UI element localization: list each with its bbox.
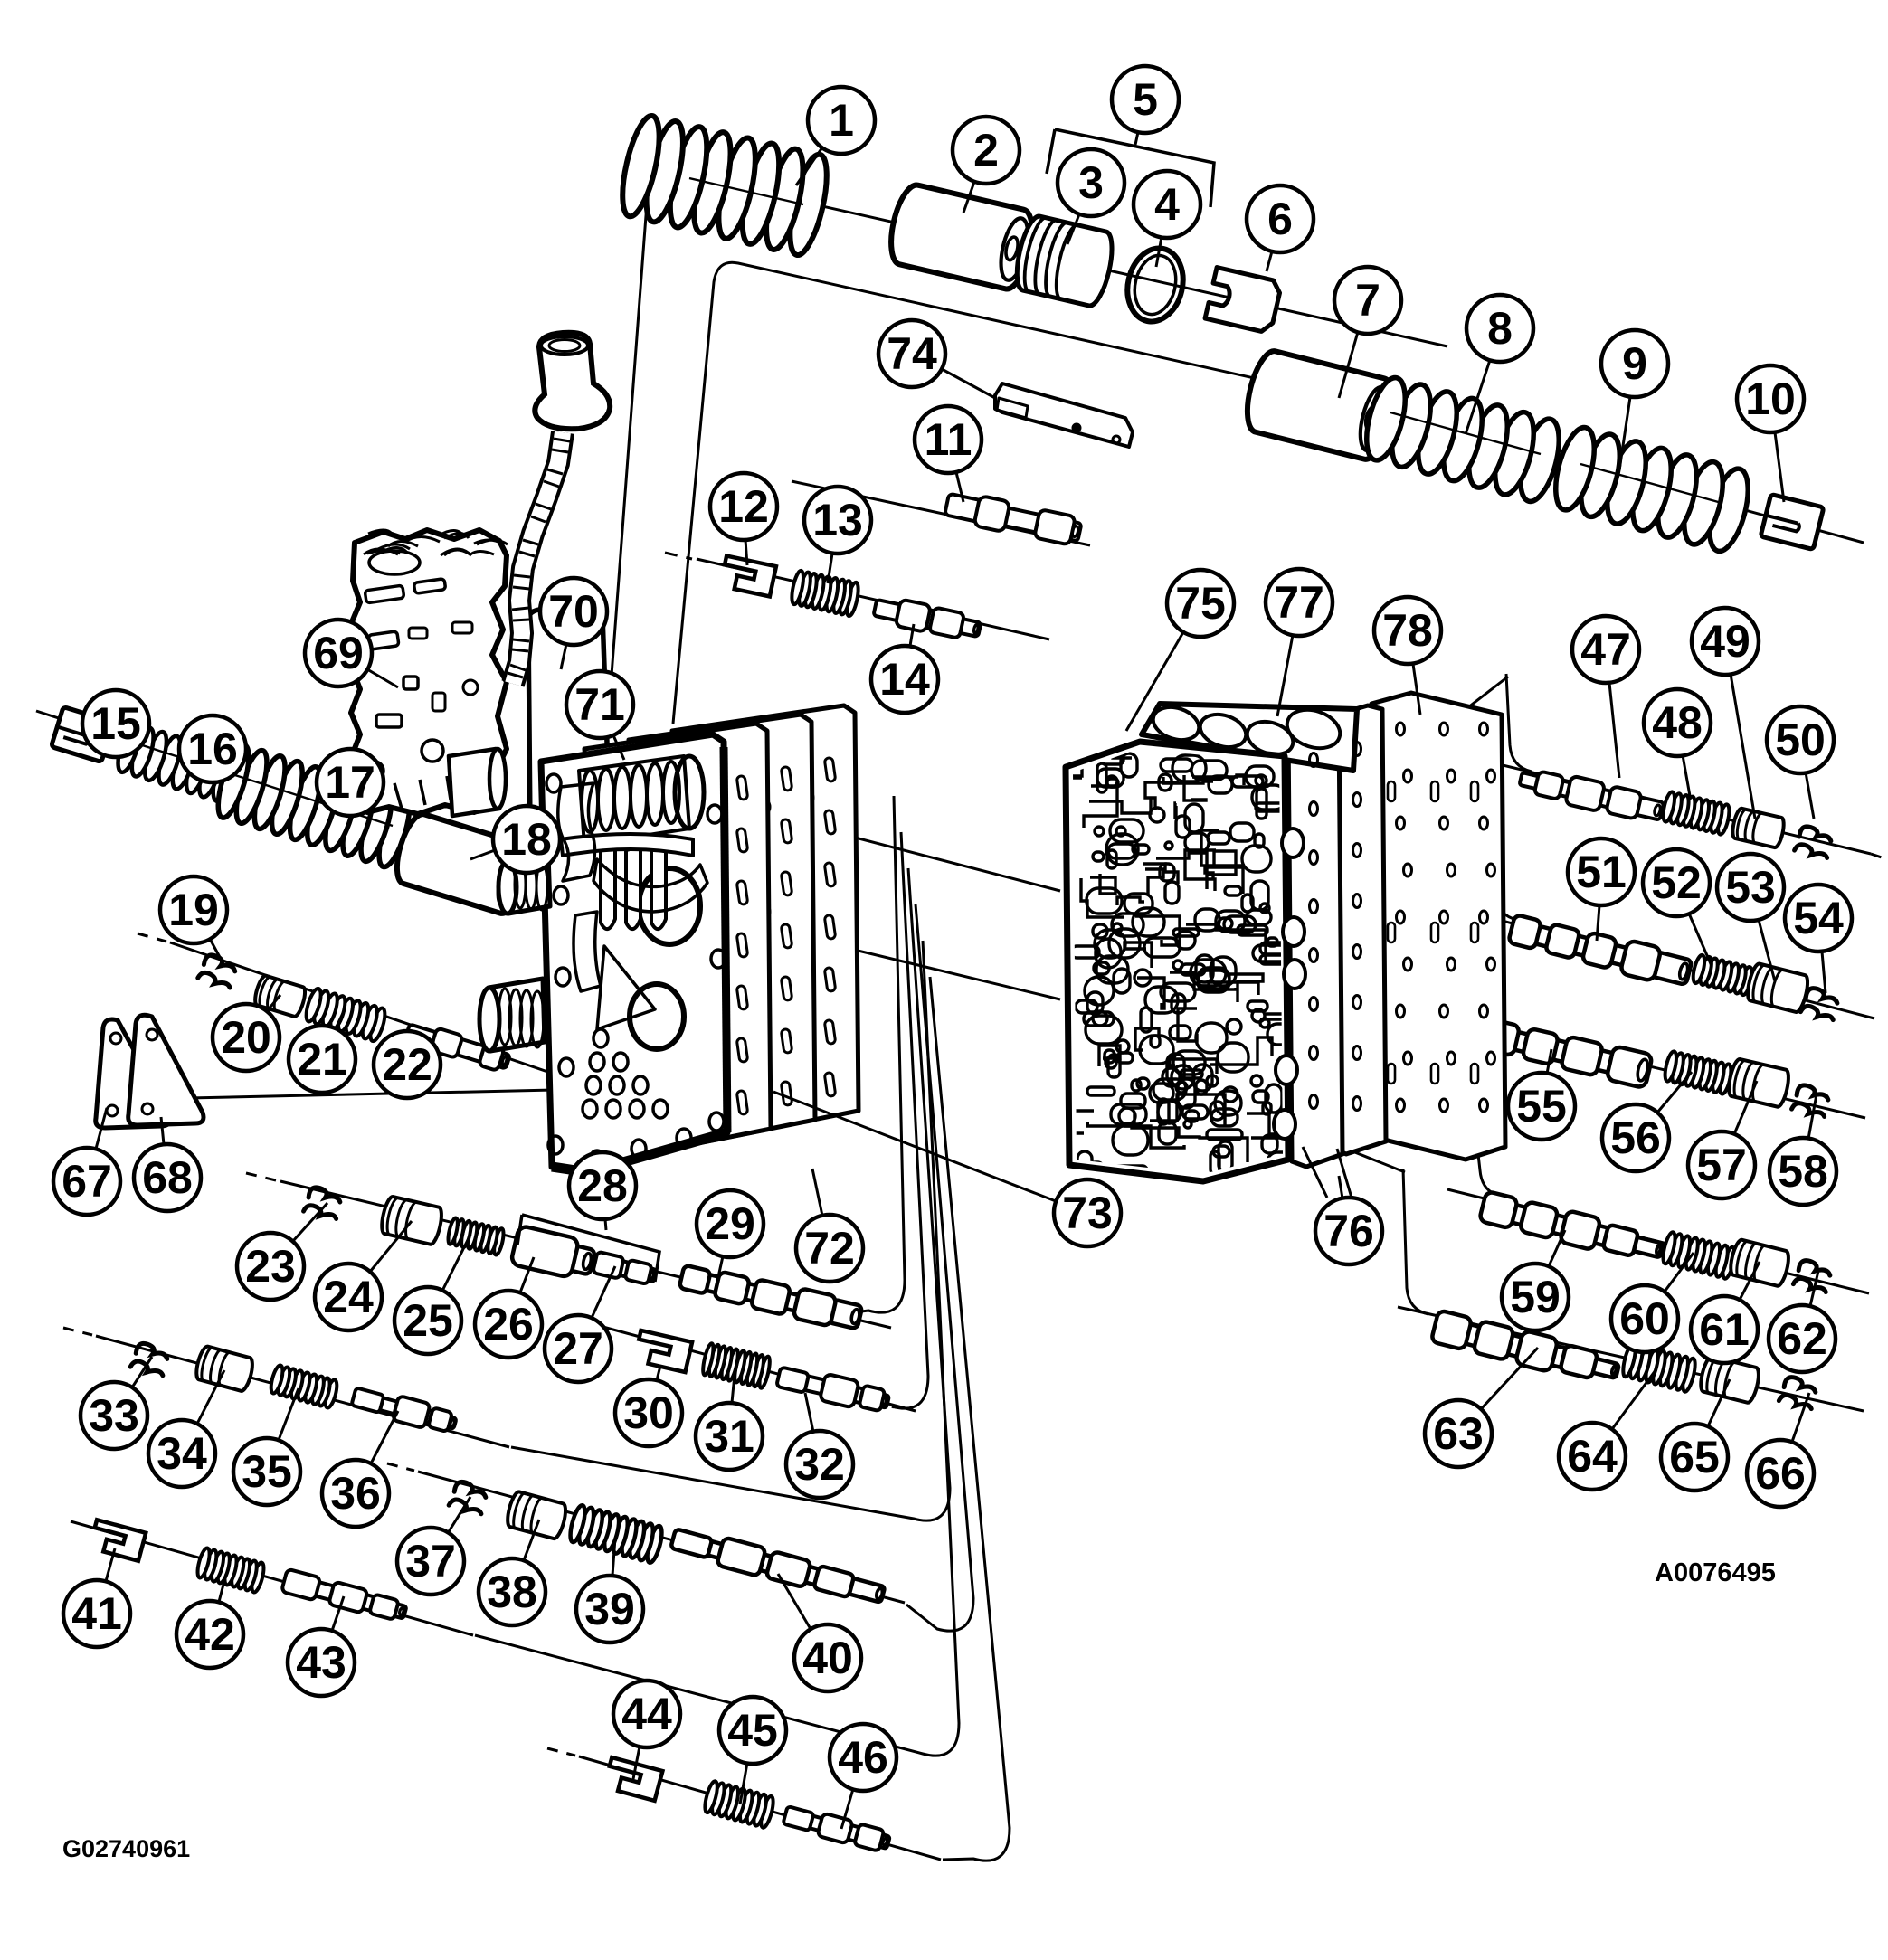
svg-text:29: 29 xyxy=(705,1198,755,1249)
svg-text:61: 61 xyxy=(1699,1304,1750,1355)
svg-text:10: 10 xyxy=(1745,374,1796,424)
svg-text:28: 28 xyxy=(577,1160,628,1211)
svg-text:8: 8 xyxy=(1487,303,1513,354)
svg-text:36: 36 xyxy=(330,1468,381,1519)
svg-text:17: 17 xyxy=(325,757,375,808)
svg-text:19: 19 xyxy=(168,885,219,935)
svg-text:63: 63 xyxy=(1433,1408,1484,1459)
svg-text:6: 6 xyxy=(1267,194,1293,244)
svg-text:71: 71 xyxy=(574,679,625,730)
svg-text:60: 60 xyxy=(1619,1293,1670,1344)
svg-text:31: 31 xyxy=(704,1411,754,1462)
svg-text:40: 40 xyxy=(802,1633,853,1683)
svg-text:69: 69 xyxy=(313,628,364,678)
svg-text:48: 48 xyxy=(1652,697,1703,748)
svg-text:52: 52 xyxy=(1651,857,1702,908)
svg-text:58: 58 xyxy=(1778,1146,1828,1197)
svg-text:24: 24 xyxy=(323,1272,374,1322)
svg-text:68: 68 xyxy=(142,1152,193,1203)
svg-text:44: 44 xyxy=(621,1689,672,1739)
svg-text:64: 64 xyxy=(1567,1431,1618,1482)
svg-text:77: 77 xyxy=(1274,577,1324,628)
svg-text:66: 66 xyxy=(1755,1448,1806,1499)
svg-text:30: 30 xyxy=(623,1387,674,1438)
svg-text:72: 72 xyxy=(804,1223,855,1274)
svg-text:23: 23 xyxy=(245,1241,296,1292)
svg-text:67: 67 xyxy=(62,1156,112,1207)
svg-text:75: 75 xyxy=(1175,578,1226,629)
svg-text:38: 38 xyxy=(487,1567,537,1617)
svg-text:12: 12 xyxy=(718,481,769,532)
svg-text:73: 73 xyxy=(1062,1188,1113,1238)
svg-text:7: 7 xyxy=(1355,275,1380,326)
svg-text:15: 15 xyxy=(90,698,141,749)
svg-text:35: 35 xyxy=(242,1446,292,1497)
svg-text:11: 11 xyxy=(925,414,972,465)
svg-text:49: 49 xyxy=(1700,616,1750,667)
svg-text:62: 62 xyxy=(1777,1313,1827,1364)
svg-text:39: 39 xyxy=(584,1584,635,1634)
svg-text:74: 74 xyxy=(887,328,937,379)
svg-text:13: 13 xyxy=(812,495,863,545)
svg-text:65: 65 xyxy=(1669,1432,1720,1482)
svg-text:78: 78 xyxy=(1382,605,1433,656)
svg-text:43: 43 xyxy=(296,1637,346,1688)
svg-text:56: 56 xyxy=(1610,1113,1661,1163)
svg-text:54: 54 xyxy=(1793,893,1844,943)
svg-text:50: 50 xyxy=(1775,715,1826,765)
svg-text:3: 3 xyxy=(1078,157,1104,208)
svg-text:47: 47 xyxy=(1580,624,1631,675)
svg-text:A0076495: A0076495 xyxy=(1655,1558,1776,1587)
svg-text:45: 45 xyxy=(727,1705,778,1756)
svg-text:26: 26 xyxy=(483,1299,534,1349)
svg-text:22: 22 xyxy=(382,1039,432,1090)
svg-text:46: 46 xyxy=(838,1732,888,1783)
svg-text:G02740961: G02740961 xyxy=(62,1835,190,1862)
svg-text:76: 76 xyxy=(1323,1206,1374,1256)
svg-text:16: 16 xyxy=(187,724,238,774)
svg-text:5: 5 xyxy=(1133,74,1158,125)
svg-text:2: 2 xyxy=(973,125,999,175)
svg-text:21: 21 xyxy=(297,1034,347,1084)
svg-text:1: 1 xyxy=(829,95,854,146)
svg-text:34: 34 xyxy=(157,1428,207,1479)
svg-text:57: 57 xyxy=(1696,1140,1747,1190)
svg-text:14: 14 xyxy=(879,654,930,705)
svg-text:27: 27 xyxy=(553,1323,603,1374)
svg-text:53: 53 xyxy=(1725,862,1776,913)
svg-text:42: 42 xyxy=(185,1609,235,1660)
svg-text:4: 4 xyxy=(1154,179,1180,230)
svg-text:70: 70 xyxy=(548,586,599,637)
svg-text:37: 37 xyxy=(405,1536,456,1586)
svg-text:20: 20 xyxy=(221,1012,271,1063)
svg-text:55: 55 xyxy=(1516,1081,1567,1131)
svg-text:9: 9 xyxy=(1622,338,1647,389)
svg-text:33: 33 xyxy=(89,1390,139,1441)
svg-text:59: 59 xyxy=(1510,1272,1561,1322)
svg-text:51: 51 xyxy=(1576,847,1627,897)
svg-text:41: 41 xyxy=(71,1588,122,1639)
svg-text:18: 18 xyxy=(501,814,552,865)
svg-text:32: 32 xyxy=(794,1439,845,1490)
svg-text:25: 25 xyxy=(403,1295,453,1346)
